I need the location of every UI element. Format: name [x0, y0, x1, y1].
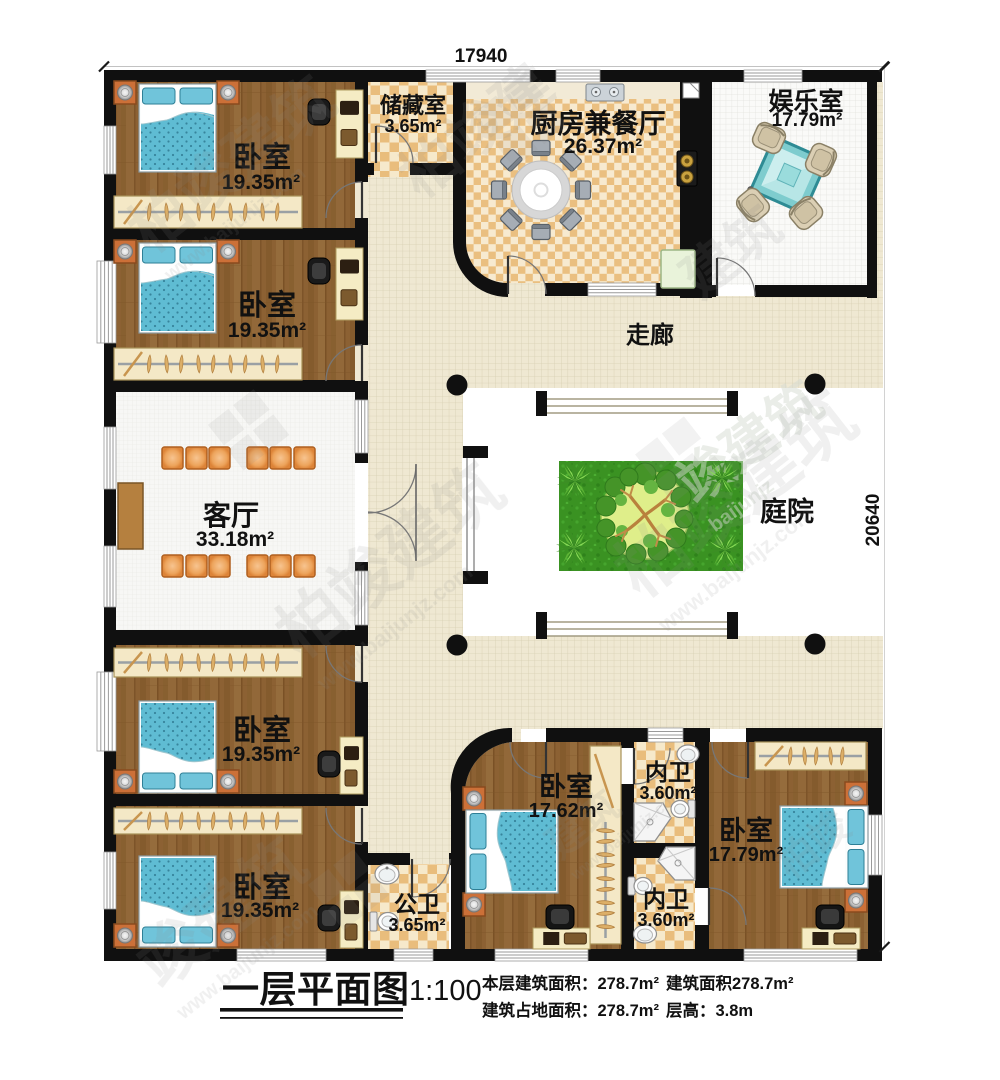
svg-text:本层建筑面积：278.7m²: 本层建筑面积：278.7m² [482, 973, 659, 993]
svg-text:客厅: 客厅 [203, 499, 259, 531]
svg-text:公卫: 公卫 [394, 891, 440, 917]
svg-text:19.35m²: 19.35m² [228, 319, 306, 342]
svg-text:层高：3.8m: 层高：3.8m [666, 1000, 753, 1020]
svg-text:17.79m²: 17.79m² [772, 110, 843, 131]
svg-text:储藏室: 储藏室 [380, 93, 446, 118]
svg-text:一层平面图: 一层平面图 [222, 969, 410, 1010]
svg-text:建筑占地面积：278.7m²: 建筑占地面积：278.7m² [482, 1000, 659, 1020]
svg-text:卧室: 卧室 [233, 713, 291, 747]
svg-text:19.35m²: 19.35m² [222, 743, 300, 766]
svg-text:17940: 17940 [455, 46, 508, 67]
svg-text:内卫: 内卫 [645, 759, 691, 785]
svg-text:1:100: 1:100 [409, 975, 482, 1007]
svg-text:26.37m²: 26.37m² [564, 135, 642, 158]
svg-text:3.60m²: 3.60m² [637, 910, 694, 930]
svg-text:建筑面积278.7m²: 建筑面积278.7m² [666, 973, 794, 993]
svg-text:走廊: 走廊 [626, 321, 674, 349]
svg-text:内卫: 内卫 [643, 886, 689, 912]
svg-text:33.18m²: 33.18m² [196, 528, 274, 551]
svg-text:3.65m²: 3.65m² [388, 915, 445, 935]
svg-text:卧室: 卧室 [238, 288, 296, 322]
svg-text:20640: 20640 [863, 494, 884, 547]
svg-text:卧室: 卧室 [719, 815, 773, 846]
